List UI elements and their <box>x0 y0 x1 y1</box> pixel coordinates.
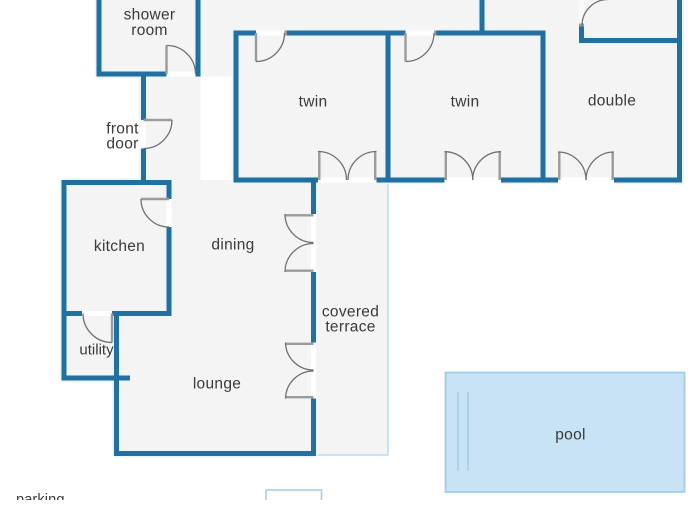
svg-text:door: door <box>106 136 138 153</box>
svg-text:parking: parking <box>16 492 65 500</box>
svg-text:lounge: lounge <box>193 376 241 393</box>
svg-text:room: room <box>131 22 168 39</box>
svg-text:utility: utility <box>79 342 114 359</box>
svg-text:double: double <box>588 93 636 110</box>
svg-text:dining: dining <box>211 237 254 254</box>
svg-text:twin: twin <box>451 94 480 111</box>
svg-text:pool: pool <box>555 427 586 444</box>
svg-text:shower: shower <box>124 7 176 24</box>
svg-text:terrace: terrace <box>325 319 375 336</box>
svg-text:twin: twin <box>299 94 328 111</box>
svg-text:kitchen: kitchen <box>94 238 145 255</box>
